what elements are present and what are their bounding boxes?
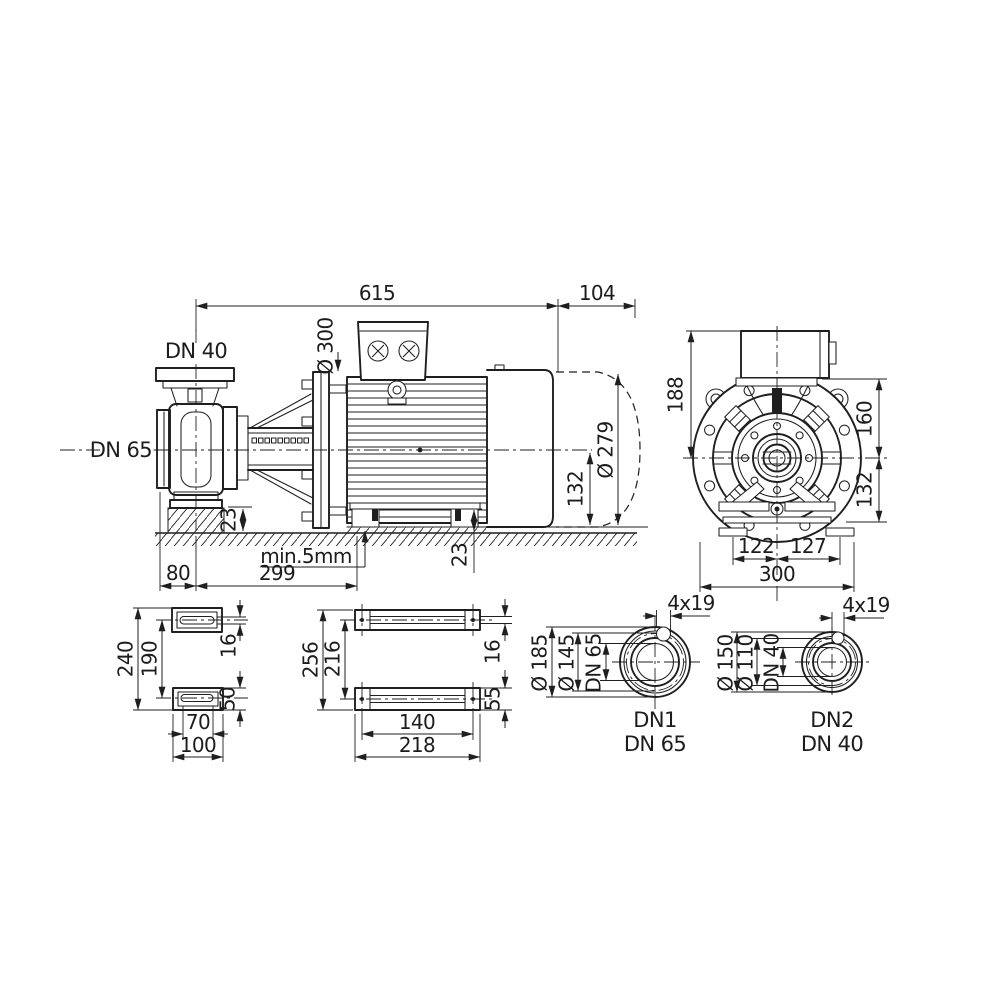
dim-motor-foot-height: 23: [448, 543, 472, 567]
dim-flange2-bolt-circle: Ø 110: [734, 634, 758, 691]
dim-motor-slot-width: 16: [481, 640, 505, 664]
dim-pump-slot-width: 16: [217, 634, 241, 658]
ground-hatch: [155, 533, 637, 546]
label-flange2-name: DN2: [810, 708, 853, 732]
label-flange1-name: DN1: [633, 708, 676, 732]
dim-motor-pad-width: 55: [481, 687, 505, 711]
dim-feet-span: 299: [259, 561, 295, 585]
dim-pump-foot-depth: 240: [114, 641, 138, 677]
dim-center-to-foot: 132: [853, 472, 877, 508]
flange2-bolt-hole: [832, 632, 844, 644]
dim-motor-foot-depth: 256: [299, 642, 323, 678]
dim-flange-diameter: Ø 300: [314, 317, 338, 374]
dim-motor-hole-span: 140: [399, 710, 435, 734]
terminal-box-front: [741, 331, 829, 378]
label-flange1-size: DN 65: [624, 732, 686, 756]
dim-pump-foot-height: 23: [217, 508, 241, 532]
dim-flange1-holes: 4x19: [667, 591, 715, 615]
dim-pump-hole-pitch: 190: [138, 641, 162, 677]
dim-length-total: 615: [359, 281, 395, 305]
dim-pump-pad-length: 100: [180, 733, 216, 757]
dim-flange2-holes: 4x19: [842, 593, 890, 617]
label-flange2-size: DN 40: [801, 732, 863, 756]
dim-width-total: 300: [759, 562, 795, 586]
dim-pump-pad-width: 50: [216, 687, 240, 711]
dim-flange1-bolt-circle: Ø 145: [555, 634, 579, 691]
dim-flange2-bore: DN 40: [760, 633, 784, 692]
dim-motor-diameter: Ø 279: [594, 421, 618, 478]
cable-gland: [829, 342, 836, 364]
lifting-eye: [388, 381, 406, 399]
dim-center-to-base: 132: [564, 471, 588, 507]
dimensional-drawing: 615 104 Ø 300 DN 40 DN 65 Ø 279 132 23 2…: [0, 0, 1000, 1000]
motor-center-dot: [418, 448, 423, 453]
dim-pump-hole-span: 70: [186, 710, 210, 734]
dim-flange1-outer: Ø 185: [528, 634, 552, 691]
dim-box-to-center: 188: [664, 377, 688, 413]
label-discharge-port: DN 40: [165, 339, 227, 363]
dim-foot-right: 127: [790, 534, 826, 558]
flange1-bolt-hole: [657, 627, 671, 641]
dim-flange1-bore: DN 65: [582, 633, 606, 692]
dim-motor-pad-length: 218: [399, 733, 435, 757]
dim-foot-left: 122: [738, 534, 774, 558]
dim-motor-hole-pitch: 216: [321, 641, 345, 677]
label-suction-port: DN 65: [90, 438, 152, 462]
pump-drawing-svg: 615 104 Ø 300 DN 40 DN 65 Ø 279 132 23 2…: [0, 0, 1000, 1000]
end-foot-pad-right: [826, 528, 854, 536]
dim-flange-to-center: 160: [853, 401, 877, 437]
grout-strip: [347, 527, 490, 533]
dim-pump-foot-offset: 80: [166, 561, 190, 585]
dim-length-fan: 104: [579, 281, 615, 305]
